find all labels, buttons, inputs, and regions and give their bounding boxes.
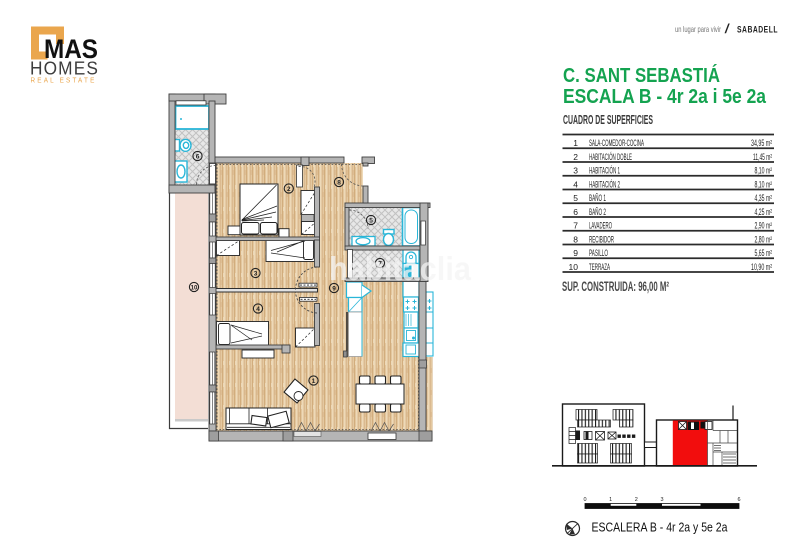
svg-text:3: 3: [573, 166, 578, 176]
svg-text:TERRAZA: TERRAZA: [589, 262, 610, 272]
svg-text:6: 6: [737, 497, 740, 503]
svg-text:2,90 m²: 2,90 m²: [755, 221, 773, 231]
svg-text:8: 8: [337, 180, 341, 187]
svg-text:C. SANT SEBASTIÁ: C. SANT SEBASTIÁ: [563, 64, 720, 87]
svg-text:8: 8: [573, 234, 578, 244]
svg-text:10,90 m²: 10,90 m²: [751, 262, 772, 272]
svg-text:PASILLO: PASILLO: [589, 248, 608, 258]
svg-text:8,10 m²: 8,10 m²: [755, 180, 773, 190]
svg-text:SALA-COMEDOR-COCINA: SALA-COMEDOR-COCINA: [589, 138, 644, 148]
svg-text:HABITACIÓN 1: HABITACIÓN 1: [589, 166, 620, 176]
svg-text:REAL ESTATE: REAL ESTATE: [31, 78, 97, 85]
svg-text:ESCALERA B - 4r 2a y 5e 2a: ESCALERA B - 4r 2a y 5e 2a: [592, 520, 729, 535]
svg-text:5,65 m²: 5,65 m²: [755, 248, 773, 258]
svg-text:SUP. CONSTRUIDA: 96,00 M²: SUP. CONSTRUIDA: 96,00 M²: [562, 279, 669, 294]
svg-text:10: 10: [569, 262, 579, 272]
svg-text:3: 3: [254, 271, 258, 278]
svg-text:10: 10: [191, 286, 198, 292]
svg-text:2: 2: [635, 497, 638, 503]
svg-text:1: 1: [573, 138, 578, 148]
svg-text:11,45 m²: 11,45 m²: [753, 152, 772, 162]
svg-text:HABITACIÓN 2: HABITACIÓN 2: [589, 180, 620, 190]
svg-text:2: 2: [573, 152, 578, 162]
svg-text:4,35 m²: 4,35 m²: [755, 193, 773, 203]
svg-text:HABITACIÓN DOBLE: HABITACIÓN DOBLE: [589, 152, 632, 162]
svg-text:BAÑO 2: BAÑO 2: [589, 207, 606, 217]
svg-text:SABADELL: SABADELL: [737, 25, 778, 36]
svg-text:9: 9: [573, 248, 578, 258]
svg-text:CUADRO DE SUPERFICIES: CUADRO DE SUPERFICIES: [563, 112, 653, 127]
svg-text:2,80 m²: 2,80 m²: [755, 234, 773, 244]
svg-text:6: 6: [196, 154, 200, 161]
svg-text:6: 6: [573, 207, 578, 217]
svg-text:4,25 m²: 4,25 m²: [755, 207, 773, 217]
svg-text:34,95 m²: 34,95 m²: [751, 138, 772, 148]
svg-text:1: 1: [609, 497, 612, 503]
svg-text:7: 7: [573, 221, 578, 231]
svg-text:8,10 m²: 8,10 m²: [755, 166, 773, 176]
svg-text:5: 5: [369, 218, 373, 225]
svg-text:0: 0: [583, 497, 586, 503]
svg-text:3: 3: [660, 497, 663, 503]
svg-text:RECIBIDOR: RECIBIDOR: [589, 234, 614, 244]
svg-text:ESCALA B - 4r 2a i 5e 2a: ESCALA B - 4r 2a i 5e 2a: [563, 86, 767, 108]
svg-text:2: 2: [287, 186, 291, 193]
svg-text:habitaclia: habitaclia: [329, 250, 472, 287]
svg-text:1: 1: [312, 378, 316, 385]
svg-text:5: 5: [573, 193, 578, 203]
svg-text:4: 4: [256, 306, 260, 313]
svg-text:LAVADERO: LAVADERO: [589, 221, 612, 231]
svg-text:4: 4: [573, 180, 578, 190]
svg-text:HOMES: HOMES: [30, 58, 99, 79]
svg-text:BAÑO 1: BAÑO 1: [589, 193, 606, 203]
svg-text:un lugar para vivir: un lugar para vivir: [675, 24, 721, 34]
